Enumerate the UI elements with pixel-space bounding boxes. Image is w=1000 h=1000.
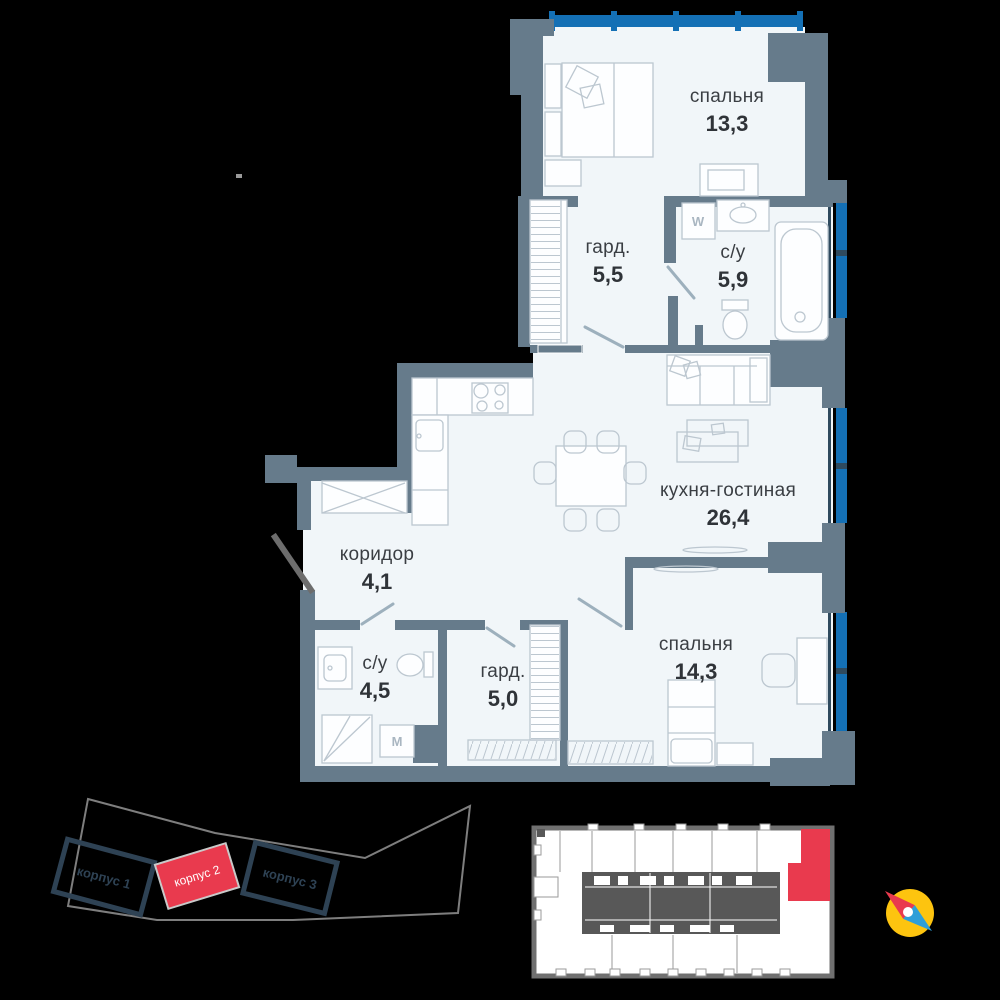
floor-overview bbox=[534, 824, 832, 976]
room-label-wardrobe-2: гард. 5,0 bbox=[480, 661, 525, 712]
sofa-icon bbox=[667, 355, 770, 405]
room-label-bedroom-1: спальня 13,3 bbox=[690, 86, 764, 137]
room-label-bedroom-2: спальня 14,3 bbox=[659, 634, 733, 685]
window-bath bbox=[836, 203, 847, 318]
room-label-bathroom-1: с/у 5,9 bbox=[718, 242, 749, 293]
building-core bbox=[582, 872, 780, 934]
washer-letter: W bbox=[692, 214, 705, 229]
dash-mark bbox=[236, 174, 242, 178]
room-label-corridor: коридор 4,1 bbox=[340, 544, 415, 595]
building-3: корпус 3 bbox=[243, 843, 337, 914]
building-1-label: корпус 1 bbox=[75, 863, 132, 892]
compass-icon bbox=[885, 889, 934, 937]
closet-icon-bedroom-2 bbox=[568, 741, 653, 764]
room-label-wardrobe-1: гард. 5,5 bbox=[585, 237, 630, 288]
building-2-highlighted: корпус 2 bbox=[155, 843, 239, 909]
room-label-kitchen-living: кухня-гостиная 26,4 bbox=[660, 480, 796, 531]
sink-icon-bathroom-1 bbox=[717, 200, 769, 231]
floorplan-page: W bbox=[0, 0, 1000, 1000]
sink-icon-bathroom-2 bbox=[318, 647, 352, 689]
toilet-icon-bathroom-2 bbox=[397, 652, 433, 677]
bathtub-icon bbox=[775, 222, 828, 340]
shower-icon bbox=[322, 715, 372, 763]
site-plan: корпус 1 корпус 2 корпус 3 bbox=[54, 799, 470, 920]
desk-icon-bedroom-1 bbox=[700, 164, 758, 196]
washer2-icon: M bbox=[380, 725, 414, 757]
washer2-letter: M bbox=[392, 734, 403, 749]
building-3-label: корпус 3 bbox=[261, 865, 318, 893]
toilet-icon-bathroom-1 bbox=[722, 300, 748, 339]
washer-icon: W bbox=[682, 203, 715, 239]
floorplan-svg: W bbox=[0, 0, 1000, 1000]
room-label-bathroom-2: с/у 4,5 bbox=[360, 653, 391, 704]
closet-icon-corridor bbox=[322, 481, 407, 513]
nightstand-icon bbox=[717, 743, 753, 765]
